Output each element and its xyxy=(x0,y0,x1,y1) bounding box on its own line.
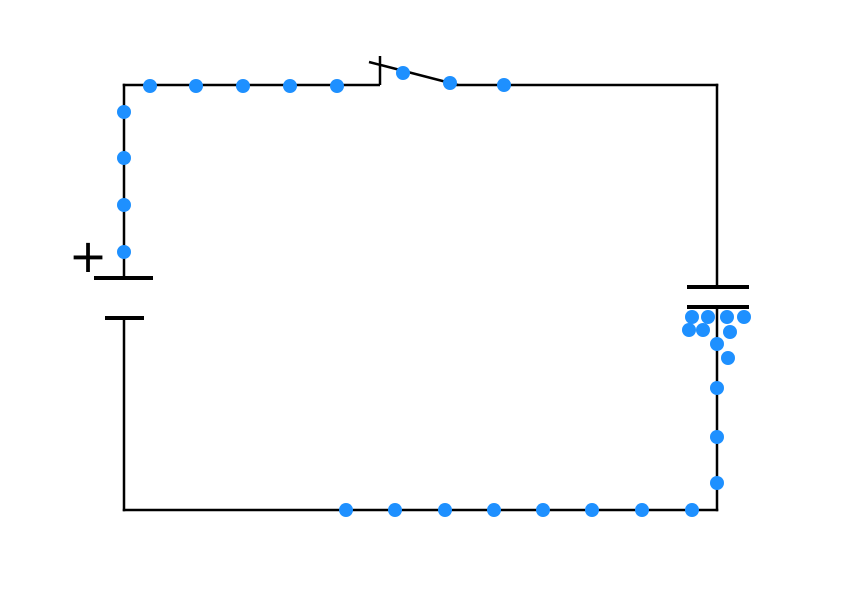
electron-dot xyxy=(710,381,724,395)
electron-dot xyxy=(283,79,297,93)
electron-dot xyxy=(720,310,734,324)
electron-dot xyxy=(117,105,131,119)
electron-dot xyxy=(497,78,511,92)
electron-dot xyxy=(737,310,751,324)
electron-dot xyxy=(536,503,550,517)
electron-dot xyxy=(388,503,402,517)
electron-dot xyxy=(710,337,724,351)
electron-dot xyxy=(396,66,410,80)
circuit-canvas: + xyxy=(0,0,842,596)
electron-dot xyxy=(685,310,699,324)
electrons-layer xyxy=(117,66,751,517)
electron-dot xyxy=(710,476,724,490)
circuit-diagram: + xyxy=(0,0,842,596)
electron-dot xyxy=(236,79,250,93)
electron-dot xyxy=(585,503,599,517)
electron-dot xyxy=(696,323,710,337)
electron-dot xyxy=(189,79,203,93)
electron-dot xyxy=(721,351,735,365)
electron-dot xyxy=(117,245,131,259)
electron-dot xyxy=(117,198,131,212)
electron-dot xyxy=(701,310,715,324)
wires-layer xyxy=(123,84,719,512)
electron-dot xyxy=(723,325,737,339)
electron-dot xyxy=(143,79,157,93)
components-layer xyxy=(94,56,749,318)
electron-dot xyxy=(330,79,344,93)
electron-dot xyxy=(117,151,131,165)
electron-dot xyxy=(438,503,452,517)
electron-dot xyxy=(443,76,457,90)
battery-positive-label: + xyxy=(69,229,108,283)
electron-dot xyxy=(339,503,353,517)
electron-dot xyxy=(635,503,649,517)
electron-dot xyxy=(710,430,724,444)
electron-dot xyxy=(685,503,699,517)
electron-dot xyxy=(487,503,501,517)
electron-dot xyxy=(682,323,696,337)
